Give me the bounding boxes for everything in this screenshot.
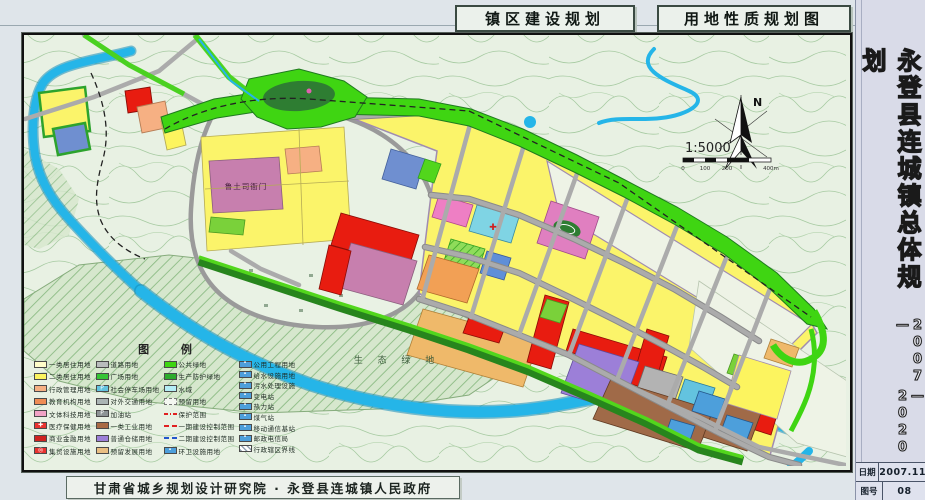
legend-item: 商业金融用地 xyxy=(34,434,92,442)
legend-label: 保护范围 xyxy=(179,409,207,419)
legend-swatch: • xyxy=(239,403,252,410)
legend-swatch xyxy=(96,373,109,380)
legend-swatch: • xyxy=(239,392,252,399)
north-label: N xyxy=(753,96,762,109)
legend-swatch xyxy=(34,410,47,417)
legend-label: 普通仓储用地 xyxy=(111,433,153,443)
legend-item: 文体科技用地 xyxy=(34,410,92,418)
legend-swatch: ◎ xyxy=(34,447,47,454)
legend-label: 道路用地 xyxy=(111,359,139,369)
legend-column-4: •公用工程用地•给水设施用地•污水处理设施•变电站•热力站•煤气站•移动通信基站… xyxy=(239,360,297,455)
legend-swatch: • xyxy=(239,361,252,368)
header-map-title-text: 用地性质规划图 xyxy=(684,8,824,29)
legend-swatch xyxy=(164,413,177,415)
legend-column-2: 道路用地广场用地P社会停车场用地对外交通用地P加油站一类工业用地普通仓储用地预留… xyxy=(96,360,160,455)
legend-swatch: P xyxy=(96,410,109,417)
legend-item: P加油站 xyxy=(96,410,160,418)
legend-swatch xyxy=(96,435,109,442)
legend-item: 广场用地 xyxy=(96,372,160,380)
legend-swatch xyxy=(34,373,47,380)
legend-item: •污水处理设施 xyxy=(239,381,297,389)
legend-item: •热力站 xyxy=(239,402,297,410)
legend-label: 热力站 xyxy=(254,401,275,411)
scale-tick-3: 400m xyxy=(763,166,779,172)
legend-swatch xyxy=(34,435,47,442)
legend-label: 污水处理设施 xyxy=(254,380,296,390)
legend-item: •煤气站 xyxy=(239,413,297,421)
legend-label: 二类居住用地 xyxy=(49,371,91,381)
sheet-number-value: 08 xyxy=(883,482,925,500)
date-label: 日期 xyxy=(856,463,879,481)
legend-swatch xyxy=(164,425,177,427)
legend-label: 移动通信基站 xyxy=(254,423,296,433)
legend-item: •公用工程用地 xyxy=(239,360,297,368)
legend-item: 二期建设控制范围 xyxy=(164,434,235,442)
sheet-number-label: 图号 xyxy=(856,482,883,500)
scale-tick-0: 0 xyxy=(681,166,685,172)
legend-swatch xyxy=(96,422,109,429)
legend-item: 普通仓储用地 xyxy=(96,434,160,442)
legend-swatch xyxy=(96,361,109,368)
legend-swatch: • xyxy=(239,382,252,389)
legend-swatch xyxy=(96,447,109,454)
legend-swatch: ✚ xyxy=(34,422,47,429)
legend-item: 生产防护绿地 xyxy=(164,372,235,380)
legend-item: 行政辖区界线 xyxy=(239,445,297,453)
header-map-title: 用地性质规划图 xyxy=(657,5,851,32)
title-sidebar: 永登县连城镇总体规划 2007— —2020 日期 2007.11 图号 08 xyxy=(855,0,925,500)
legend-item: •邮政电信局 xyxy=(239,434,297,442)
legend-label: 给水设施用地 xyxy=(254,370,296,380)
legend-item: 一类工业用地 xyxy=(96,422,160,430)
legend-item: 教育机构用地 xyxy=(34,397,92,405)
legend-title: 图 例 xyxy=(34,341,296,357)
legend-swatch xyxy=(164,437,177,439)
sheet-number-row: 图号 08 xyxy=(856,482,925,500)
legend-label: 一期建设控制范围 xyxy=(179,421,235,431)
legend-swatch: • xyxy=(239,371,252,378)
legend-item: 公共绿地 xyxy=(164,360,235,368)
legend-swatch: • xyxy=(239,413,252,420)
legend-label: 二期建设控制范围 xyxy=(179,433,235,443)
legend-label: 环卫设施用地 xyxy=(179,446,221,456)
legend-item: •变电站 xyxy=(239,392,297,400)
legend-swatch xyxy=(34,385,47,392)
legend-swatch xyxy=(34,398,47,405)
credit-text: 甘肃省城乡规划设计研究院 · 永登县连城镇人民政府 xyxy=(94,478,432,497)
legend-item: ◎集贸设施用地 xyxy=(34,447,92,455)
legend-columns: 一类居住用地二类居住用地行政管理用地教育机构用地文体科技用地✚医疗保健用地商业金… xyxy=(34,360,296,455)
legend-label: 广场用地 xyxy=(111,371,139,381)
plan-years-first: 2007— xyxy=(856,318,925,388)
legend-label: 文体科技用地 xyxy=(49,409,91,419)
legend-item: 二类居住用地 xyxy=(34,372,92,380)
drawing-title-vertical: 永登县连城镇总体规划 xyxy=(856,48,925,316)
legend-label: 邮政电信局 xyxy=(254,433,289,443)
legend: 图 例 一类居住用地二类居住用地行政管理用地教育机构用地文体科技用地✚医疗保健用… xyxy=(34,341,296,467)
legend-label: 水域 xyxy=(179,384,193,394)
eco-green-label: 生 态 绿 地 xyxy=(354,354,441,366)
historic-site-label: 鲁土司衙门 xyxy=(225,181,268,191)
legend-label: 煤气站 xyxy=(254,412,275,422)
legend-swatch: • xyxy=(239,435,252,442)
legend-item: P社会停车场用地 xyxy=(96,385,160,393)
legend-item: 行政管理用地 xyxy=(34,385,92,393)
legend-swatch: • xyxy=(164,447,177,454)
legend-item: •给水设施用地 xyxy=(239,371,297,379)
legend-label: 变电站 xyxy=(254,391,275,401)
legend-item: 水域 xyxy=(164,385,235,393)
legend-label: 医疗保健用地 xyxy=(49,421,91,431)
legend-swatch: P xyxy=(96,385,109,392)
credit-box: 甘肃省城乡规划设计研究院 · 永登县连城镇人民政府 xyxy=(66,476,460,499)
legend-label: 集贸设施用地 xyxy=(49,446,91,456)
legend-label: 行政管理用地 xyxy=(49,384,91,394)
legend-swatch xyxy=(239,445,252,452)
legend-label: 预留发展用地 xyxy=(111,446,153,456)
scale-text: 1:5000 xyxy=(685,141,731,156)
legend-item: 保护范围 xyxy=(164,410,235,418)
header-plan-title-text: 镇区建设规划 xyxy=(485,8,605,29)
legend-label: 行政辖区界线 xyxy=(254,444,296,454)
legend-item: 一期建设控制范围 xyxy=(164,422,235,430)
legend-column-3: 公共绿地生产防护绿地水域预留用地保护范围一期建设控制范围二期建设控制范围•环卫设… xyxy=(164,360,235,455)
date-value: 2007.11 xyxy=(879,463,925,481)
scale-tick-2: 200 xyxy=(722,166,733,172)
legend-item: 预留发展用地 xyxy=(96,447,160,455)
legend-label: 公共绿地 xyxy=(179,359,207,369)
legend-label: 对外交通用地 xyxy=(111,396,153,406)
title-block-table: 日期 2007.11 图号 08 xyxy=(856,462,925,500)
legend-item: 预留用地 xyxy=(164,397,235,405)
legend-label: 公用工程用地 xyxy=(254,359,296,369)
legend-label: 一类居住用地 xyxy=(49,359,91,369)
legend-item: 对外交通用地 xyxy=(96,397,160,405)
scale-tick-1: 100 xyxy=(700,166,711,172)
legend-swatch xyxy=(164,373,177,380)
legend-swatch xyxy=(164,385,177,392)
legend-swatch xyxy=(96,398,109,405)
map-annotations: 生 态 绿 地 xyxy=(354,354,441,366)
legend-label: 加油站 xyxy=(111,409,132,419)
date-row: 日期 2007.11 xyxy=(856,463,925,482)
legend-label: 社会停车场用地 xyxy=(111,384,160,394)
legend-label: 教育机构用地 xyxy=(49,396,91,406)
header-plan-title: 镇区建设规划 xyxy=(455,5,635,32)
plan-years-second: —2020 xyxy=(856,389,925,459)
plan-years: 2007— —2020 xyxy=(856,318,925,458)
legend-label: 商业金融用地 xyxy=(49,433,91,443)
legend-item: ✚医疗保健用地 xyxy=(34,422,92,430)
legend-item: 道路用地 xyxy=(96,360,160,368)
legend-swatch xyxy=(164,361,177,368)
legend-swatch xyxy=(34,361,47,368)
legend-label: 生产防护绿地 xyxy=(179,371,221,381)
legend-label: 预留用地 xyxy=(179,396,207,406)
legend-item: 一类居住用地 xyxy=(34,360,92,368)
legend-label: 一类工业用地 xyxy=(111,421,153,431)
legend-column-1: 一类居住用地二类居住用地行政管理用地教育机构用地文体科技用地✚医疗保健用地商业金… xyxy=(34,360,92,455)
old-town-blocks: 鲁土司衙门 xyxy=(201,127,351,251)
legend-swatch: • xyxy=(239,424,252,431)
legend-item: •移动通信基站 xyxy=(239,424,297,432)
legend-item: •环卫设施用地 xyxy=(164,447,235,455)
legend-swatch xyxy=(164,398,177,405)
